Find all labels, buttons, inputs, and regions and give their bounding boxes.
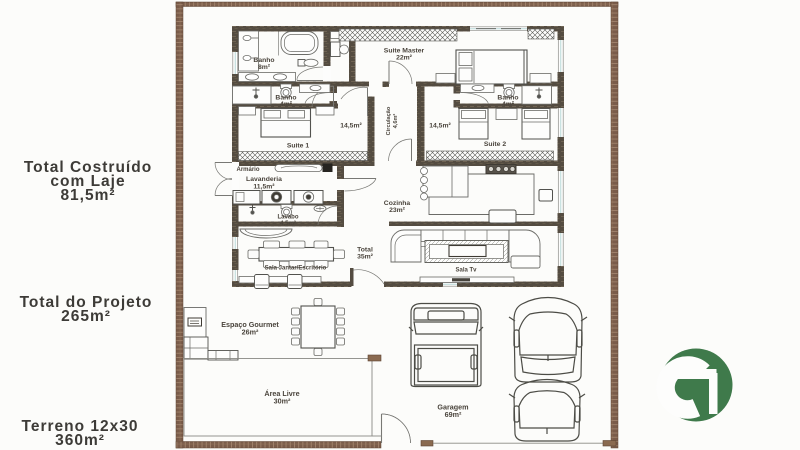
- svg-text:Banho: Banho: [253, 57, 274, 64]
- svg-text:35m²: 35m²: [357, 254, 374, 261]
- svg-text:4m²: 4m²: [280, 101, 293, 108]
- svg-text:4m²: 4m²: [502, 101, 515, 108]
- svg-text:Sala Tv: Sala Tv: [455, 268, 477, 274]
- svg-text:11,5m²: 11,5m²: [253, 184, 275, 191]
- svg-text:8m²: 8m²: [258, 64, 271, 71]
- svg-text:Armário: Armário: [236, 167, 259, 173]
- svg-text:360m²: 360m²: [55, 432, 105, 449]
- svg-text:4,6m²: 4,6m²: [392, 114, 399, 129]
- svg-text:14,5m²: 14,5m²: [429, 123, 451, 130]
- svg-text:Suite 2: Suite 2: [484, 141, 507, 148]
- svg-text:26m²: 26m²: [242, 328, 259, 337]
- svg-text:Lavabo: Lavabo: [277, 215, 298, 221]
- svg-text:Total: Total: [357, 247, 373, 254]
- svg-text:Suite Master: Suite Master: [384, 48, 425, 55]
- svg-text:Circulação: Circulação: [386, 106, 392, 135]
- svg-text:69m²: 69m²: [445, 410, 462, 419]
- svg-text:Sala Jantar/Escritório: Sala Jantar/Escritório: [265, 266, 327, 272]
- svg-text:Lavanderia: Lavanderia: [246, 176, 282, 183]
- svg-text:265m²: 265m²: [61, 308, 111, 325]
- svg-text:4,5m²: 4,5m²: [280, 220, 296, 227]
- svg-text:14,5m²: 14,5m²: [340, 123, 362, 130]
- svg-text:30m²: 30m²: [274, 397, 291, 406]
- svg-text:Cozinha: Cozinha: [384, 200, 411, 207]
- svg-text:22m²: 22m²: [396, 55, 413, 62]
- svg-text:23m²: 23m²: [389, 207, 406, 214]
- svg-text:Suite 1: Suite 1: [287, 143, 310, 150]
- svg-text:81,5m²: 81,5m²: [60, 187, 115, 204]
